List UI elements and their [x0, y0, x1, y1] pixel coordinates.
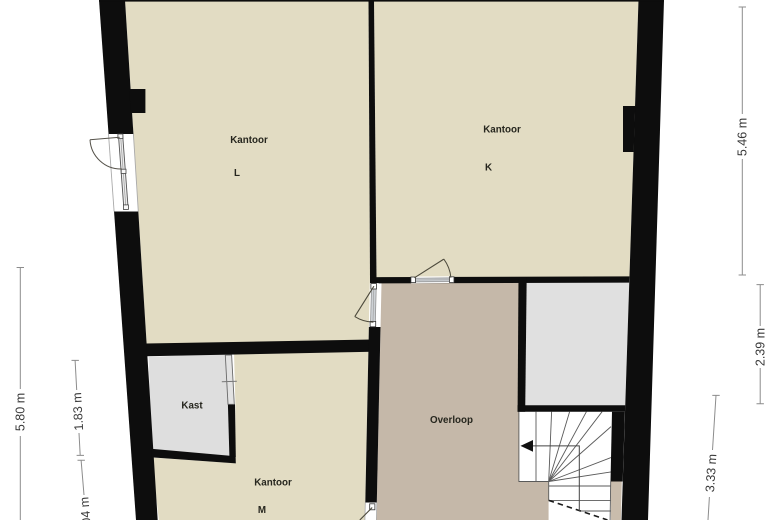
svg-text:Kantoor: Kantoor: [483, 125, 521, 136]
svg-text:3.33 m: 3.33 m: [703, 453, 719, 492]
svg-text:2.39 m: 2.39 m: [754, 328, 768, 366]
svg-text:M: M: [258, 505, 266, 516]
svg-text:K: K: [485, 163, 492, 174]
svg-text:5.80 m: 5.80 m: [14, 393, 28, 431]
svg-text:Kast: Kast: [181, 401, 203, 412]
svg-text:1.83 m: 1.83 m: [70, 392, 86, 431]
svg-text:L: L: [234, 168, 240, 179]
svg-text:Kantoor: Kantoor: [230, 135, 268, 146]
svg-text:Kantoor: Kantoor: [254, 478, 292, 489]
svg-text:Overloop: Overloop: [430, 415, 473, 426]
svg-text:5.46 m: 5.46 m: [736, 118, 750, 156]
